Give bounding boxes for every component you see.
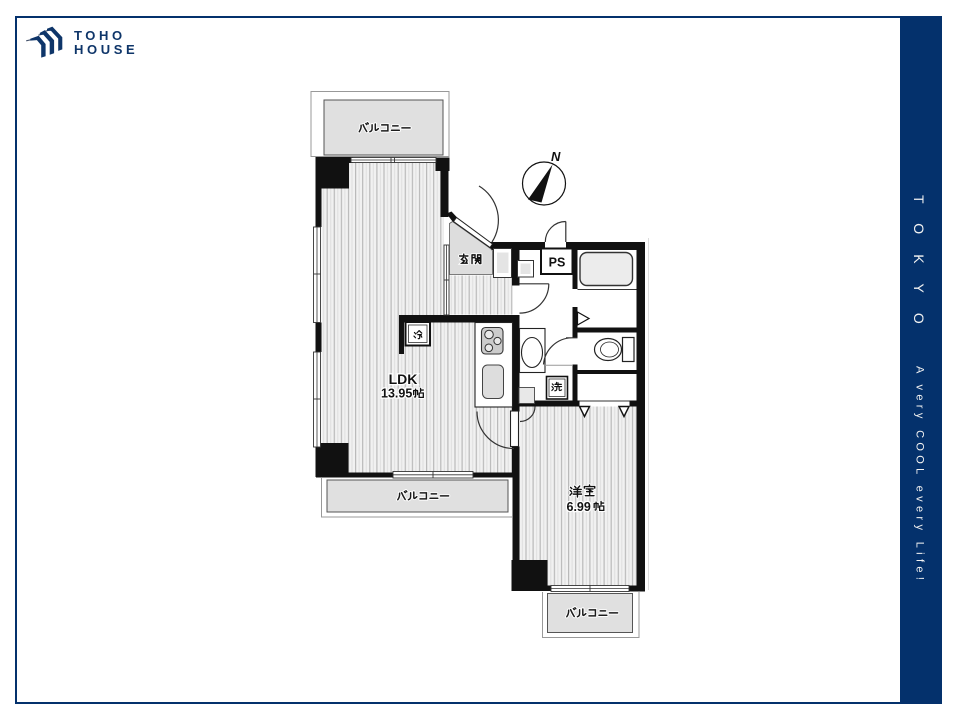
svg-text:LDK: LDK	[389, 371, 418, 387]
svg-text:N: N	[551, 149, 561, 164]
svg-text:TOHO: TOHO	[74, 28, 126, 43]
svg-text:HOUSE: HOUSE	[74, 42, 138, 57]
svg-text:TOKYO: TOKYO	[911, 195, 927, 344]
svg-text:A very COOL every Life!: A very COOL every Life!	[914, 366, 926, 584]
svg-text:PS: PS	[549, 256, 566, 270]
svg-text:13.95: 13.95	[381, 387, 412, 401]
svg-text:6.99: 6.99	[567, 500, 591, 514]
